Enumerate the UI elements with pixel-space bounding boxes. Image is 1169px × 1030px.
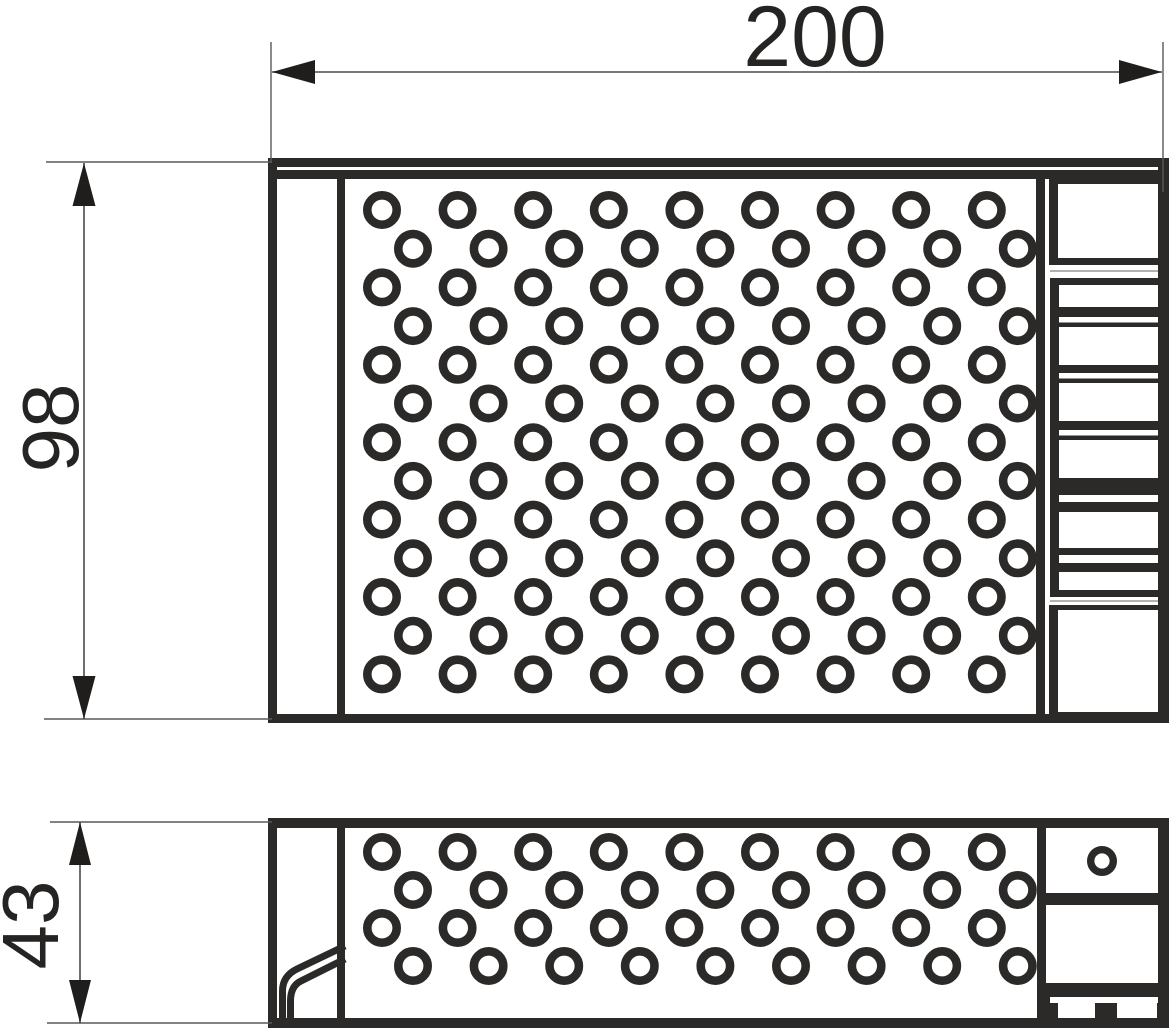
perforation-hole (550, 875, 579, 904)
dim-height-label: 98 (6, 384, 95, 473)
perforation-hole (519, 913, 548, 942)
side-view (268, 818, 1169, 1028)
perforation-hole (776, 234, 805, 263)
perforation-hole (474, 621, 503, 650)
perforation-hole (519, 837, 548, 866)
terminal-block-top-view (1049, 175, 1158, 723)
perforation-hole (776, 544, 805, 573)
perforation-hole (398, 466, 427, 495)
perforation-hole (1003, 621, 1032, 650)
perforation-hole (670, 350, 699, 379)
perforation-hole (897, 660, 926, 689)
perforation-hole (928, 621, 957, 650)
perforation-hole (443, 273, 472, 302)
perforation-hole (519, 582, 548, 611)
perforation-hole (625, 466, 654, 495)
top-view-bottom-line (268, 714, 1169, 723)
top-view-terminal-divider (1036, 170, 1045, 723)
perforation-hole (701, 466, 730, 495)
perforation-hole (625, 234, 654, 263)
perforation-hole (443, 195, 472, 224)
perforation-hole (821, 273, 850, 302)
perforation-hole (1003, 466, 1032, 495)
side-terminal-window (1117, 1003, 1157, 1018)
perforation-hole (443, 913, 472, 942)
perforation-hole (519, 350, 548, 379)
arrowhead-down (69, 980, 91, 1023)
perforation-hole (928, 951, 957, 980)
perforation-hole (474, 389, 503, 418)
perforation-hole (550, 234, 579, 263)
perforation-hole (594, 195, 623, 224)
arrowhead-down (73, 676, 96, 719)
perforation-hole (821, 837, 850, 866)
arrowhead-up (69, 822, 91, 865)
perforation-hole (550, 466, 579, 495)
dim-depth: 43 (0, 822, 272, 1023)
perforation-hole (625, 875, 654, 904)
perforation-hole (972, 582, 1001, 611)
perforation-grid-side (367, 837, 1032, 980)
perforation-hole (745, 582, 774, 611)
perforation-grid-top (367, 195, 1032, 689)
perforation-hole (474, 466, 503, 495)
perforation-hole (972, 273, 1001, 302)
perforation-hole (519, 505, 548, 534)
terminal-slit (1059, 555, 1158, 563)
top-view-top-outer-line (268, 158, 1169, 167)
terminal-slot (1059, 440, 1158, 478)
side-view-left-flange-line (337, 818, 345, 1028)
dim-depth-label: 43 (0, 881, 75, 970)
perforation-hole (897, 837, 926, 866)
perforation-hole (443, 428, 472, 457)
top-view-right-edge (1158, 158, 1169, 723)
perforation-hole (928, 875, 957, 904)
drawing-canvas: 200 98 43 (0, 0, 1169, 1030)
perforation-hole (443, 582, 472, 611)
perforation-hole (928, 544, 957, 573)
perforation-hole (550, 621, 579, 650)
perforation-hole (550, 951, 579, 980)
perforation-hole (670, 582, 699, 611)
perforation-hole (550, 389, 579, 418)
perforation-hole (550, 311, 579, 340)
perforation-hole (519, 660, 548, 689)
perforation-hole (594, 582, 623, 611)
perforation-hole (928, 389, 957, 418)
perforation-hole (367, 660, 396, 689)
perforation-hole (398, 389, 427, 418)
perforation-hole (594, 350, 623, 379)
terminal-top-box-window (1058, 184, 1158, 258)
perforation-hole (670, 428, 699, 457)
side-terminal-bar (1046, 893, 1158, 905)
perforation-hole (972, 837, 1001, 866)
perforation-hole (701, 544, 730, 573)
perforation-hole (1003, 951, 1032, 980)
perforation-hole (398, 544, 427, 573)
perforation-hole (1003, 544, 1032, 573)
perforation-hole (897, 273, 926, 302)
perforation-hole (519, 273, 548, 302)
perforation-hole (474, 234, 503, 263)
perforation-hole (897, 505, 926, 534)
side-view-top-line (268, 818, 1169, 828)
perforation-hole (625, 311, 654, 340)
perforation-hole (594, 505, 623, 534)
terminal-slot (1059, 512, 1158, 548)
perforation-hole (821, 582, 850, 611)
perforation-hole (972, 195, 1001, 224)
perforation-hole (398, 621, 427, 650)
perforation-hole (1003, 389, 1032, 418)
side-view-left-edge (268, 818, 277, 1028)
perforation-hole (821, 350, 850, 379)
perforation-hole (745, 913, 774, 942)
perforation-hole (701, 311, 730, 340)
perforation-hole (1003, 234, 1032, 263)
top-view-left-flange-line (337, 170, 345, 723)
perforation-hole (594, 660, 623, 689)
perforation-hole (972, 660, 1001, 689)
mounting-bracket-bend (283, 946, 346, 1023)
perforation-hole (1003, 311, 1032, 340)
perforation-hole (745, 350, 774, 379)
perforation-hole (670, 913, 699, 942)
perforation-hole (821, 505, 850, 534)
perforation-hole (852, 311, 881, 340)
perforation-hole (852, 466, 881, 495)
perforation-hole (701, 875, 730, 904)
arrowhead-right (1119, 60, 1162, 84)
dim-width-label: 200 (743, 0, 887, 85)
perforation-hole (928, 311, 957, 340)
side-terminal-slit (1050, 997, 1158, 1003)
perforation-hole (594, 428, 623, 457)
perforation-hole (519, 195, 548, 224)
perforation-hole (928, 466, 957, 495)
perforation-hole (701, 389, 730, 418)
dim-height: 98 (6, 162, 272, 719)
terminal-slit (1059, 495, 1158, 502)
perforation-hole (852, 951, 881, 980)
perforation-hole (367, 273, 396, 302)
perforation-hole (367, 837, 396, 866)
perforation-hole (367, 913, 396, 942)
top-view-top-inner-line (272, 170, 1169, 179)
perforation-hole (745, 428, 774, 457)
perforation-hole (821, 428, 850, 457)
perforation-hole (852, 234, 881, 263)
terminal-slot (1059, 285, 1158, 307)
perforation-hole (745, 837, 774, 866)
perforation-hole (670, 505, 699, 534)
terminal-strip-body (1050, 278, 1158, 597)
perforation-hole (474, 544, 503, 573)
arrowhead-up (73, 163, 96, 206)
perforation-hole (852, 875, 881, 904)
perforation-hole (776, 875, 805, 904)
side-view-bottom-line (268, 1018, 1169, 1028)
perforation-hole (897, 428, 926, 457)
side-view-terminal-divider (1037, 818, 1046, 1028)
perforation-hole (972, 428, 1001, 457)
perforation-hole (474, 951, 503, 980)
perforation-hole (398, 234, 427, 263)
perforation-hole (625, 389, 654, 418)
perforation-hole (550, 544, 579, 573)
perforation-hole (928, 234, 957, 263)
perforation-hole (625, 621, 654, 650)
perforation-hole (398, 875, 427, 904)
perforation-hole (594, 913, 623, 942)
perforation-hole (852, 621, 881, 650)
perforation-hole (443, 505, 472, 534)
perforation-hole (625, 544, 654, 573)
perforation-hole (701, 621, 730, 650)
terminal-slit (1059, 373, 1158, 379)
perforation-hole (897, 350, 926, 379)
perforation-hole (594, 273, 623, 302)
perforation-hole (1003, 875, 1032, 904)
perforation-hole (670, 273, 699, 302)
perforation-hole (745, 195, 774, 224)
perforation-hole (670, 837, 699, 866)
top-view-left-edge (268, 158, 277, 723)
terminal-slot (1059, 383, 1158, 421)
perforation-hole (367, 350, 396, 379)
side-view-right-edge (1158, 818, 1169, 1028)
terminal-block-side-view (1046, 850, 1158, 1018)
perforation-hole (625, 951, 654, 980)
perforation-hole (745, 505, 774, 534)
perforation-hole (776, 951, 805, 980)
perforation-hole (897, 582, 926, 611)
perforation-hole (776, 466, 805, 495)
perforation-hole (367, 428, 396, 457)
perforation-hole (821, 913, 850, 942)
perforation-hole (972, 505, 1001, 534)
terminal-slit (1059, 317, 1158, 323)
perforation-hole (367, 505, 396, 534)
perforation-hole (776, 389, 805, 418)
perforation-hole (701, 951, 730, 980)
screw-hole (1091, 850, 1114, 873)
perforation-hole (776, 311, 805, 340)
perforation-hole (745, 273, 774, 302)
perforation-hole (670, 195, 699, 224)
perforation-hole (367, 195, 396, 224)
perforation-hole (367, 582, 396, 611)
perforation-hole (776, 621, 805, 650)
terminal-slot (1059, 572, 1158, 590)
perforation-hole (670, 660, 699, 689)
perforation-hole (745, 660, 774, 689)
perforation-hole (443, 350, 472, 379)
perforation-hole (897, 913, 926, 942)
perforation-hole (821, 660, 850, 689)
side-terminal-window (1058, 1003, 1095, 1018)
terminal-slit (1059, 430, 1158, 436)
perforation-hole (852, 544, 881, 573)
perforation-hole (821, 195, 850, 224)
perforation-hole (701, 234, 730, 263)
perforation-hole (398, 311, 427, 340)
technical-drawing: 200 98 43 (0, 0, 1169, 1030)
perforation-hole (519, 428, 548, 457)
perforation-hole (474, 875, 503, 904)
perforation-hole (852, 389, 881, 418)
perforation-hole (443, 837, 472, 866)
top-view (268, 158, 1169, 723)
perforation-hole (443, 660, 472, 689)
perforation-hole (474, 311, 503, 340)
arrowhead-left (272, 60, 315, 84)
perforation-hole (398, 951, 427, 980)
perforation-hole (972, 350, 1001, 379)
perforation-hole (594, 837, 623, 866)
perforation-hole (972, 913, 1001, 942)
terminal-bottom-box-window (1058, 610, 1158, 712)
terminal-slot (1059, 327, 1158, 365)
side-terminal-bar (1046, 983, 1158, 997)
perforation-hole (897, 195, 926, 224)
